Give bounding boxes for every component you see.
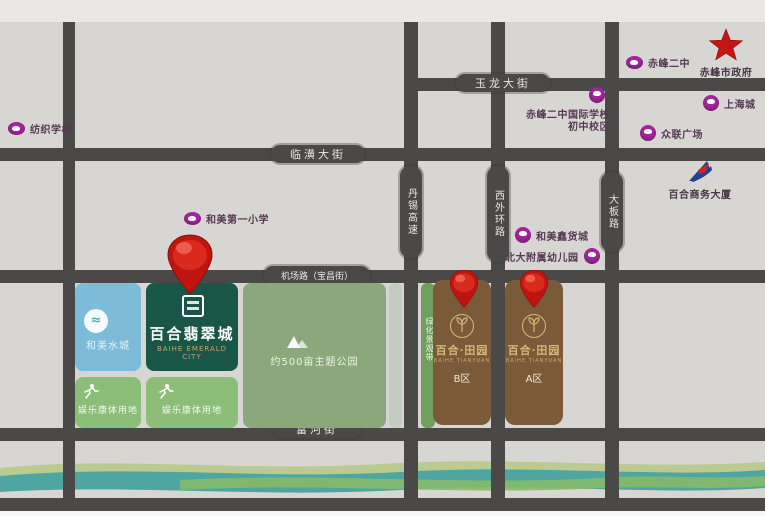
block-label: 和美水城 [75,337,141,352]
road-label-airport: 机场路（宝昌街） [264,266,370,284]
star-icon [708,28,744,62]
landmark-label-line2: 初中校区 [516,122,610,134]
landmark-label: 众联广场 [661,126,703,141]
school-badge-icon [584,248,600,264]
landmark-label: 赤峰市政府 [696,64,756,79]
road-bottom [0,498,765,511]
seal-icon [182,295,204,317]
landmark-baihe-business-tower: 百合商务大厦 [652,158,748,201]
school-badge-icon [626,56,643,69]
tianyuan-english: BAIHE TIANYUAN [433,358,491,364]
commercial-badge-icon [515,227,531,243]
tianyuan-english: BAIHE TIANYUAN [505,358,563,364]
tianyuan-title: 百合·田园 [433,342,491,358]
running-person-icon [83,383,99,399]
block-buffer-strip [389,283,402,428]
commercial-badge-icon [640,125,656,141]
landmark-chifeng-no2-middle: 赤峰二中 [626,55,690,70]
landmark-hemei-first-primary: 和美第一小学 [184,211,269,226]
mountain-icon [283,331,311,349]
landmark-fangzhi-school: 纺织学校 [8,121,72,136]
landmark-intl-school: 赤峰二中国际学校 初中校区 [516,110,610,134]
block-theme-park: 约500亩主题公园 [243,283,386,428]
landmark-hemei-market: 和美鑫货城 [515,227,589,243]
landmark-label: 上海城 [724,96,756,111]
landmark-city-government: 赤峰市政府 [696,28,756,79]
road-airport-road [0,270,765,283]
landmark-beida-kindergarten: 北大附属幼儿园 [505,248,600,264]
landmark-label: 百合商务大厦 [652,186,748,201]
landmark-label: 赤峰二中 [648,55,690,70]
project-name: 百合翡翠城 [146,323,238,344]
landmark-label: 和美鑫货城 [536,228,589,243]
block-recreation-2: 娱乐康体用地 [146,377,238,428]
block-label: 约500亩主题公园 [243,353,386,368]
road-label-linhuang: 临潢大街 [271,145,365,163]
map-bottom-margin [0,511,765,516]
emblem-icon [450,314,474,338]
road-linhuang-avenue [0,148,765,161]
map-top-margin [0,0,765,22]
landmark-label: 纺织学校 [30,121,72,136]
location-pin-zone-a [517,266,551,311]
block-label: 娱乐康体用地 [146,403,238,416]
emblem-icon [522,314,546,338]
road-label-daban: 大板路 [601,172,623,252]
baihe-tower-logo-icon [685,158,715,184]
project-name-english: BAIHE EMERALD CITY [146,345,238,361]
zone-label: A区 [505,370,563,385]
commercial-badge-icon [703,95,719,111]
zone-label: B区 [433,370,491,385]
running-person-icon [158,383,174,399]
landmark-zhonglian-plaza: 众联广场 [640,125,703,141]
block-recreation-1: 娱乐康体用地 [75,377,141,428]
river [0,446,765,498]
location-map: 玉龙大街 临潢大街 机场路（宝昌街） 富河街 丹锡高速 西外环路 大板路 ≈ 和… [0,0,765,516]
road-fuhe-street [0,428,765,441]
road-label-danxi: 丹锡高速 [400,166,422,258]
block-hemei-water-city: ≈ 和美水城 [75,283,141,371]
school-badge-icon [184,212,201,225]
school-badge-icon [589,87,605,103]
landmark-label: 和美第一小学 [206,211,269,226]
landmark-label: 北大附属幼儿园 [505,249,579,264]
tianyuan-title: 百合·田园 [505,342,563,358]
landmark-label-line1: 赤峰二中国际学校 [516,110,610,122]
landmark-shanghai-city: 上海城 [703,95,756,111]
water-icon: ≈ [84,309,108,333]
block-label: 娱乐康体用地 [75,403,141,416]
block-emerald-city: 百合翡翠城 BAIHE EMERALD CITY [146,283,238,371]
location-pin-zone-b [447,266,481,311]
school-badge-icon [8,122,25,135]
location-pin-emerald-city [163,232,217,296]
road-label-yulong: 玉龙大街 [456,74,550,92]
